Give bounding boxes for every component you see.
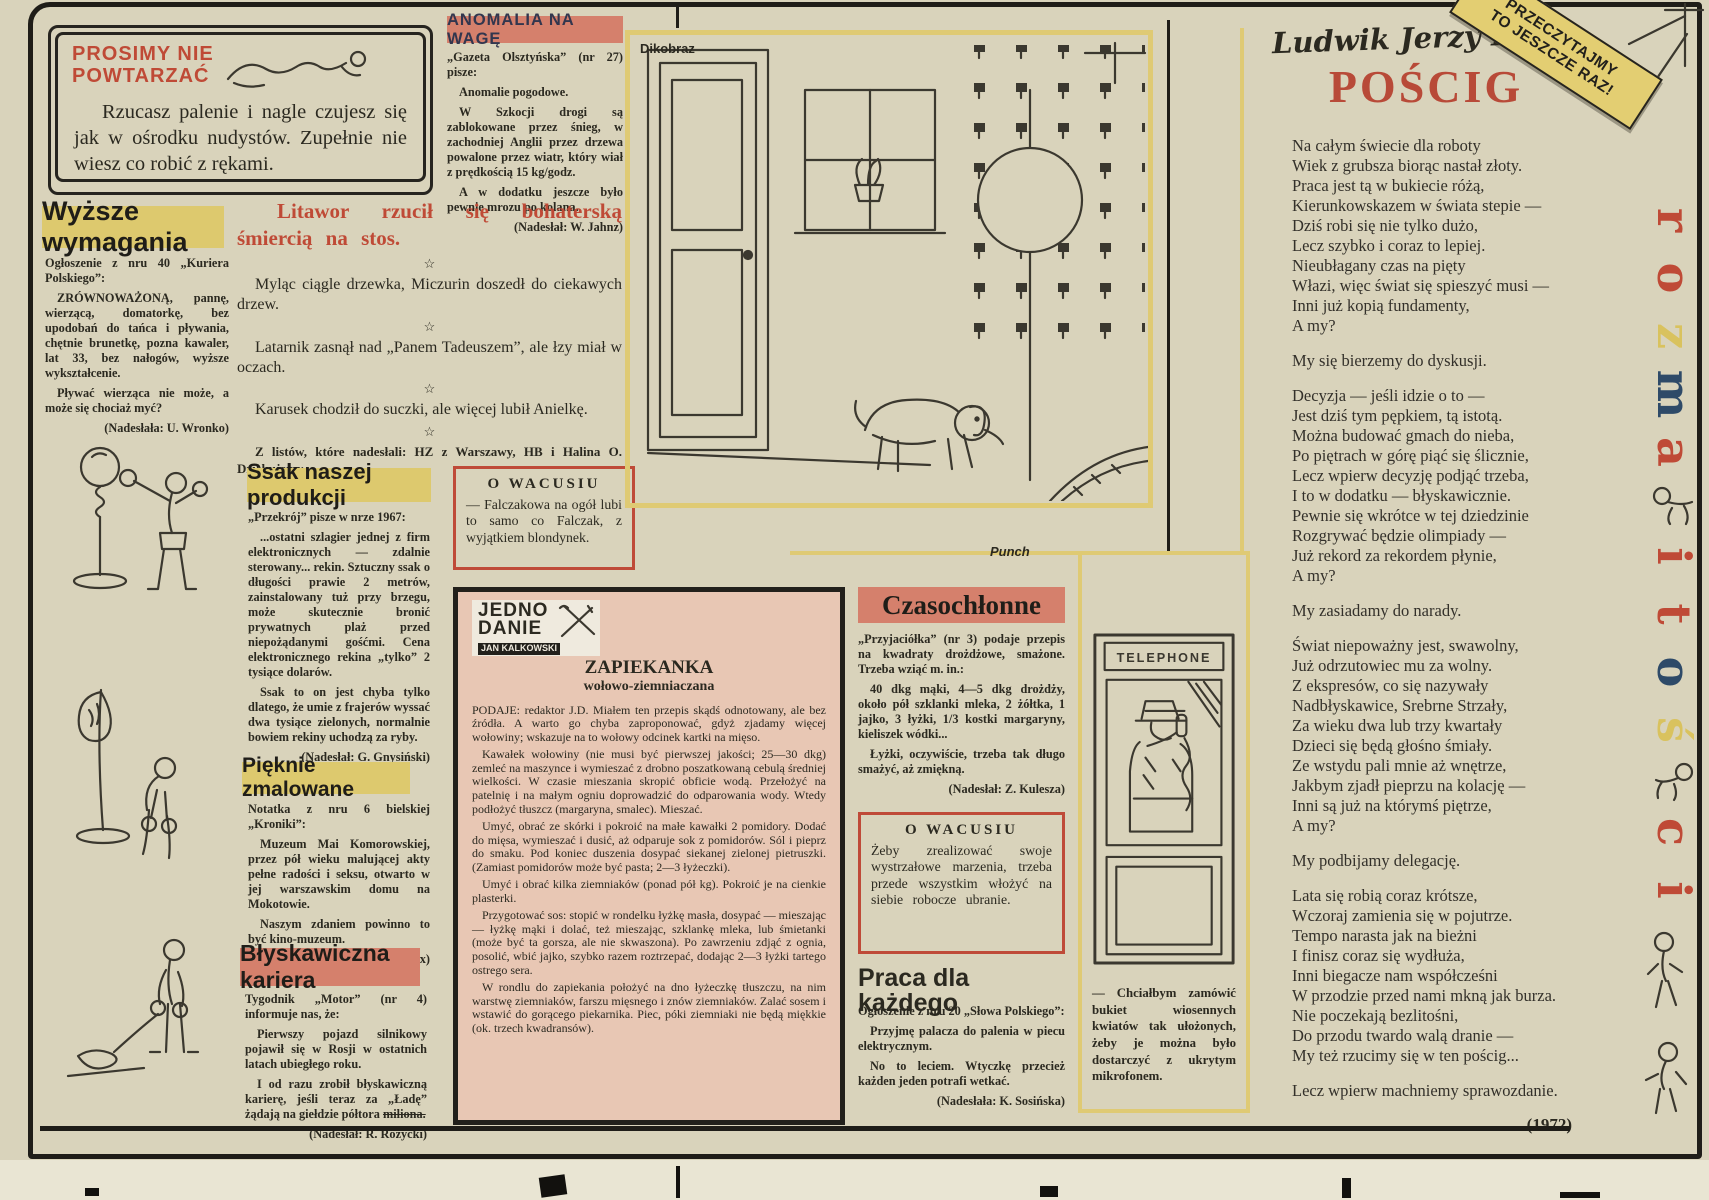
paragraph: Anomalie pogodowe. <box>447 85 623 100</box>
aphorisms-block: Litawor rzucił się bohaterską śmiercią n… <box>237 198 622 491</box>
do-not-repeat-title: PROSIMY NIE POWTARZAĆ <box>72 43 214 87</box>
margin-doodle <box>1648 760 1700 802</box>
vertical-title-letter: ś <box>1646 698 1702 762</box>
section-title-wyzsze: Wyższe wymagania <box>42 206 224 248</box>
paragraph: Muzeum Mai Komorowskiej, przez pół wieku… <box>248 837 430 912</box>
czasochlonne-column: „Przyjaciółka” (nr 3) podaje przepis na … <box>858 632 1065 802</box>
paragraph: No to leciem. Wtyczkę przecież każden je… <box>858 1059 1065 1089</box>
poem-stanza: Świat niepoważny jest, swawolny, Już odr… <box>1292 636 1572 836</box>
paragraph: Ssak to on jest chyba tylko dlatego, że … <box>248 685 430 745</box>
telephone-sign-label: TELEPHONE <box>1117 651 1212 665</box>
reclining-nude-sketch <box>224 43 374 91</box>
poem-body: Na całym świecie dla roboty Wiek z grubs… <box>1292 136 1572 1133</box>
paragraph: ...ostatni szlagier jednej z firm elektr… <box>248 530 430 680</box>
paragraph: ZRÓWNOWAŻONĄ, pannę, wierzącą, domatorkę… <box>45 291 229 381</box>
recipe-subtitle: wołowo-ziemniaczana <box>472 679 826 696</box>
column-rule-top <box>676 2 679 28</box>
wacusiu-text: Żeby zrealizować swoje wystrzałowe marze… <box>871 843 1052 908</box>
boxer-deflated-bag-cartoon <box>48 880 223 1090</box>
paragraph: Kawałek wołowiny (nie musi być pierwszej… <box>472 748 826 816</box>
paragraph: Ogłoszenie z nru 20 „Słowa Polskiego”: <box>858 1004 1065 1019</box>
wyzsze-column: Ogłoszenie z nru 40 „Kuriera Polskiego”:… <box>45 256 229 441</box>
paragraph: W rondlu do zapiekania położyć na dno ły… <box>472 981 826 1035</box>
vertical-title-letter: t <box>1646 582 1702 646</box>
star-divider-icon: ☆ <box>237 319 622 335</box>
aphorism: Karusek chodził do suczki, ale więcej lu… <box>237 400 622 420</box>
margin-doodle <box>1640 930 1696 1020</box>
paragraph: Pierwszy pojazd silnikowy pojawił się w … <box>245 1027 427 1072</box>
vertical-title-letter: c <box>1646 800 1702 864</box>
paragraph: „Przyjaciółka” (nr 3) podaje przepis na … <box>858 632 1065 677</box>
column-rule <box>1167 20 1170 552</box>
poem-stanza: Decyzja — jeśli idzie o to — Jest dziś t… <box>1292 386 1572 586</box>
jedno-danie-logo: JEDNO DANIE JAN KALKOWSKI <box>472 600 600 656</box>
poem-stanza: Lata się robią coraz krótsze, Wczoraj za… <box>1292 886 1572 1066</box>
paragraph: W Szkocji drogi są zablokowane przez śni… <box>447 105 623 180</box>
poem-stanza: My zasiadamy do narady. <box>1292 601 1572 621</box>
paragraph: 40 dkg mąki, 4—5 dkg drożdży, około pół … <box>858 682 1065 742</box>
bottom-rule <box>40 1126 1570 1131</box>
cartoon-source-label: Punch <box>990 544 1030 560</box>
paragraph: Umyć, obrać ze skórki i pokroić na małe … <box>472 820 826 874</box>
punch-cartoon-frame: TELEPHONE — Chciałbym zamówić bukiet wio… <box>1078 551 1250 1113</box>
vertical-title-letter: a <box>1646 420 1702 484</box>
wacusiu-box-2: O WACUSIU Żeby zrealizować swoje wystrza… <box>858 812 1065 954</box>
section-title-ssak: Ssak naszej produkcji <box>247 468 431 502</box>
paragraph: Ogłoszenie z nru 40 „Kuriera Polskiego”: <box>45 256 229 286</box>
paragraph: PODAJE: redaktor J.D. Miałem ten przepis… <box>472 704 826 745</box>
paragraph: I od razu zrobił błyskawiczną karierę, j… <box>245 1077 427 1122</box>
paragraph: Pływać wierząca nie może, a może się cho… <box>45 386 229 416</box>
dikobraz-cartoon-frame: Dikobraz <box>625 30 1153 508</box>
recipe-box: JEDNO DANIE JAN KALKOWSKI ZAPIEKANKA woł… <box>453 587 845 1125</box>
page-edge-strip <box>0 1160 1709 1200</box>
paragraph: Przygotować sos: stopić w rondelku łyżkę… <box>472 909 826 977</box>
paragraph: Umyć i obrać kilka ziemniaków (ponad pół… <box>472 878 826 905</box>
vertical-title-letter: i <box>1646 524 1702 588</box>
margin-doodle <box>1634 1040 1694 1120</box>
recipe-title: ZAPIEKANKA <box>472 658 826 679</box>
crossed-cutlery-icon <box>558 604 598 640</box>
wacusiu-title: O WACUSIU <box>871 821 1052 839</box>
credit-line: (Nadesłała: K. Sosińska) <box>858 1094 1065 1109</box>
vertical-title-letter: r <box>1646 188 1702 252</box>
boxer-sagging-ball-cartoon <box>45 640 220 875</box>
poem-stanza: Lecz wpierw machniemy sprawozdanie. <box>1292 1081 1572 1101</box>
do-not-repeat-box: PROSIMY NIE POWTARZAĆ Rzucasz palenie i … <box>48 25 433 195</box>
vertical-title-letter: i <box>1646 858 1702 922</box>
section-title-czasochlonne: Czasochłonne <box>858 587 1065 623</box>
paragraph: „Przekrój” pisze w nrze 1967: <box>248 510 430 525</box>
star-divider-icon: ☆ <box>237 424 622 440</box>
margin-doodle <box>1648 482 1700 526</box>
section-title-pieknie: Pięknie zmalowane <box>242 762 410 794</box>
joke-text: Rzucasz palenie i nagle czujesz się jak … <box>74 99 407 178</box>
poem-title: POŚCIG <box>1290 64 1562 110</box>
punch-caption: — Chciałbym zamówić bukiet wiosennych kw… <box>1092 985 1236 1085</box>
credit-line: (Nadesłał: Z. Kulesza) <box>858 782 1065 797</box>
section-title-blyskawiczna: Błyskawiczna kariera <box>240 948 420 986</box>
vertical-title-letter: o <box>1646 640 1702 704</box>
praca-column: Ogłoszenie z nru 20 „Słowa Polskiego”: P… <box>858 1004 1065 1114</box>
poem-stanza: My podbijamy delegację. <box>1292 851 1572 871</box>
telephone-booth-cartoon: TELEPHONE <box>1091 631 1237 967</box>
vertical-title-letter: z <box>1646 304 1702 368</box>
logo-byline: JAN KALKOWSKI <box>478 643 560 655</box>
paragraph: „Gazeta Olsztyńska” (nr 27) pisze: <box>447 50 623 80</box>
paragraph: Łyżki, oczywiście, trzeba tak długo smaż… <box>858 747 1065 777</box>
poem-stanza: Na całym świecie dla roboty Wiek z grubs… <box>1292 136 1572 336</box>
yellow-rule-vertical <box>1240 28 1244 555</box>
star-divider-icon: ☆ <box>237 256 622 272</box>
paragraph: Tygodnik „Motor” (nr 4) informuje nas, ż… <box>245 992 427 1022</box>
cartoon-source-label: Dikobraz <box>640 41 695 57</box>
vertical-title-letter: m <box>1646 362 1702 426</box>
aphorism-headline: Litawor rzucił się bohaterską śmiercią n… <box>237 198 622 253</box>
paragraph: Przyjmę palacza do palenia w piecu elekt… <box>858 1024 1065 1054</box>
boxer-punching-ball-cartoon <box>48 425 223 620</box>
wacusiu-box-1: O WACUSIU — Falczakowa na ogół lubi to s… <box>453 466 635 570</box>
paragraph: Notatka z nru 6 bielskiej „Kroniki”: <box>248 802 430 832</box>
magazine-page: PROSIMY NIE POWTARZAĆ Rzucasz palenie i … <box>0 0 1709 1200</box>
blyskawiczna-column: Tygodnik „Motor” (nr 4) informuje nas, ż… <box>245 992 427 1147</box>
star-divider-icon: ☆ <box>237 381 622 397</box>
section-title-anomalia: ANOMALIA NA WAGĘ <box>447 16 623 43</box>
dog-and-coat-rack-cartoon <box>630 35 1148 501</box>
ssak-column: „Przekrój” pisze w nrze 1967: ...ostatni… <box>248 510 430 770</box>
aphorism: Myląc ciągle drzewka, Miczurin doszedł d… <box>237 275 622 316</box>
wacusiu-text: — Falczakowa na ogół lubi to samo co Fal… <box>466 497 622 546</box>
struck-word: miliona. <box>383 1107 426 1121</box>
aphorism: Latarnik zasnął nad „Panem Tadeuszem”, a… <box>237 338 622 379</box>
poem-stanza: My się bierzemy do dyskusji. <box>1292 351 1572 371</box>
wacusiu-title: O WACUSIU <box>466 475 622 493</box>
vertical-title-letter: o <box>1646 246 1702 310</box>
